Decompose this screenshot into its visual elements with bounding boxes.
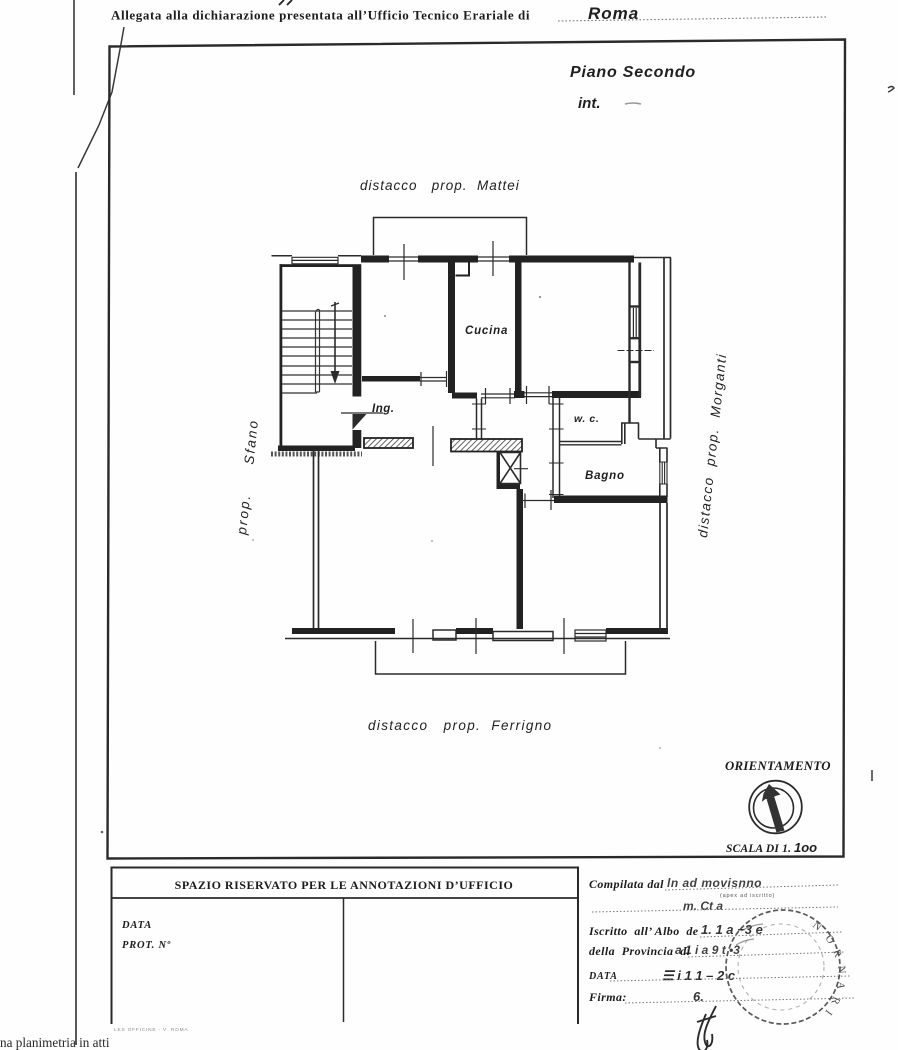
svg-text:ORIENTAMENTO: ORIENTAMENTO bbox=[725, 759, 831, 773]
svg-text:DATA: DATA bbox=[121, 920, 152, 931]
svg-text:Bagno: Bagno bbox=[585, 470, 625, 482]
svg-text:distacco prop. Mattei: distacco prop. Mattei bbox=[360, 178, 520, 193]
svg-text:LES OFFICINE - V. ROMA: LES OFFICINE - V. ROMA bbox=[114, 1027, 188, 1033]
svg-text:(apex ad iscritto): (apex ad iscritto) bbox=[720, 893, 775, 899]
svg-text:Cucina: Cucina bbox=[465, 325, 508, 337]
svg-text:PROT. Nº: PROT. Nº bbox=[122, 940, 171, 951]
svg-text:SCALA DI 1.: SCALA DI 1. bbox=[726, 843, 791, 855]
svg-text:ln ad movisnno: ln ad movisnno bbox=[667, 876, 762, 890]
svg-text:Piano Secondo: Piano Secondo bbox=[570, 64, 696, 81]
svg-text:na planimetria in atti: na planimetria in atti bbox=[0, 1035, 110, 1050]
svg-text:Compilata dal: Compilata dal bbox=[589, 877, 664, 891]
svg-text:int.: int. bbox=[578, 95, 601, 112]
svg-text:Roma: Roma bbox=[588, 4, 639, 23]
svg-text:SPAZIO RISERVATO PER LE ANNOTA: SPAZIO RISERVATO PER LE ANNOTAZIONI D’UF… bbox=[175, 878, 514, 892]
svg-text:N: N bbox=[835, 965, 848, 974]
svg-text:m. Ct a: m. Ct a bbox=[683, 899, 723, 913]
svg-text:☰ i 1 1 – 2 c: ☰ i 1 1 – 2 c bbox=[662, 968, 736, 983]
svg-text:Ing.: Ing. bbox=[372, 403, 394, 415]
svg-text:Allegata alla dichiarazione pr: Allegata alla dichiarazione presentata a… bbox=[111, 8, 530, 23]
svg-text:distacco prop. Ferrigno: distacco prop. Ferrigno bbox=[368, 718, 552, 733]
svg-text:Firma:: Firma: bbox=[588, 990, 627, 1004]
svg-text:DATA: DATA bbox=[588, 971, 618, 982]
svg-text:w. c.: w. c. bbox=[574, 413, 599, 425]
svg-text:1oo: 1oo bbox=[794, 840, 817, 855]
svg-text:Iscritto all’ Albo de: Iscritto all’ Albo de bbox=[588, 924, 699, 938]
